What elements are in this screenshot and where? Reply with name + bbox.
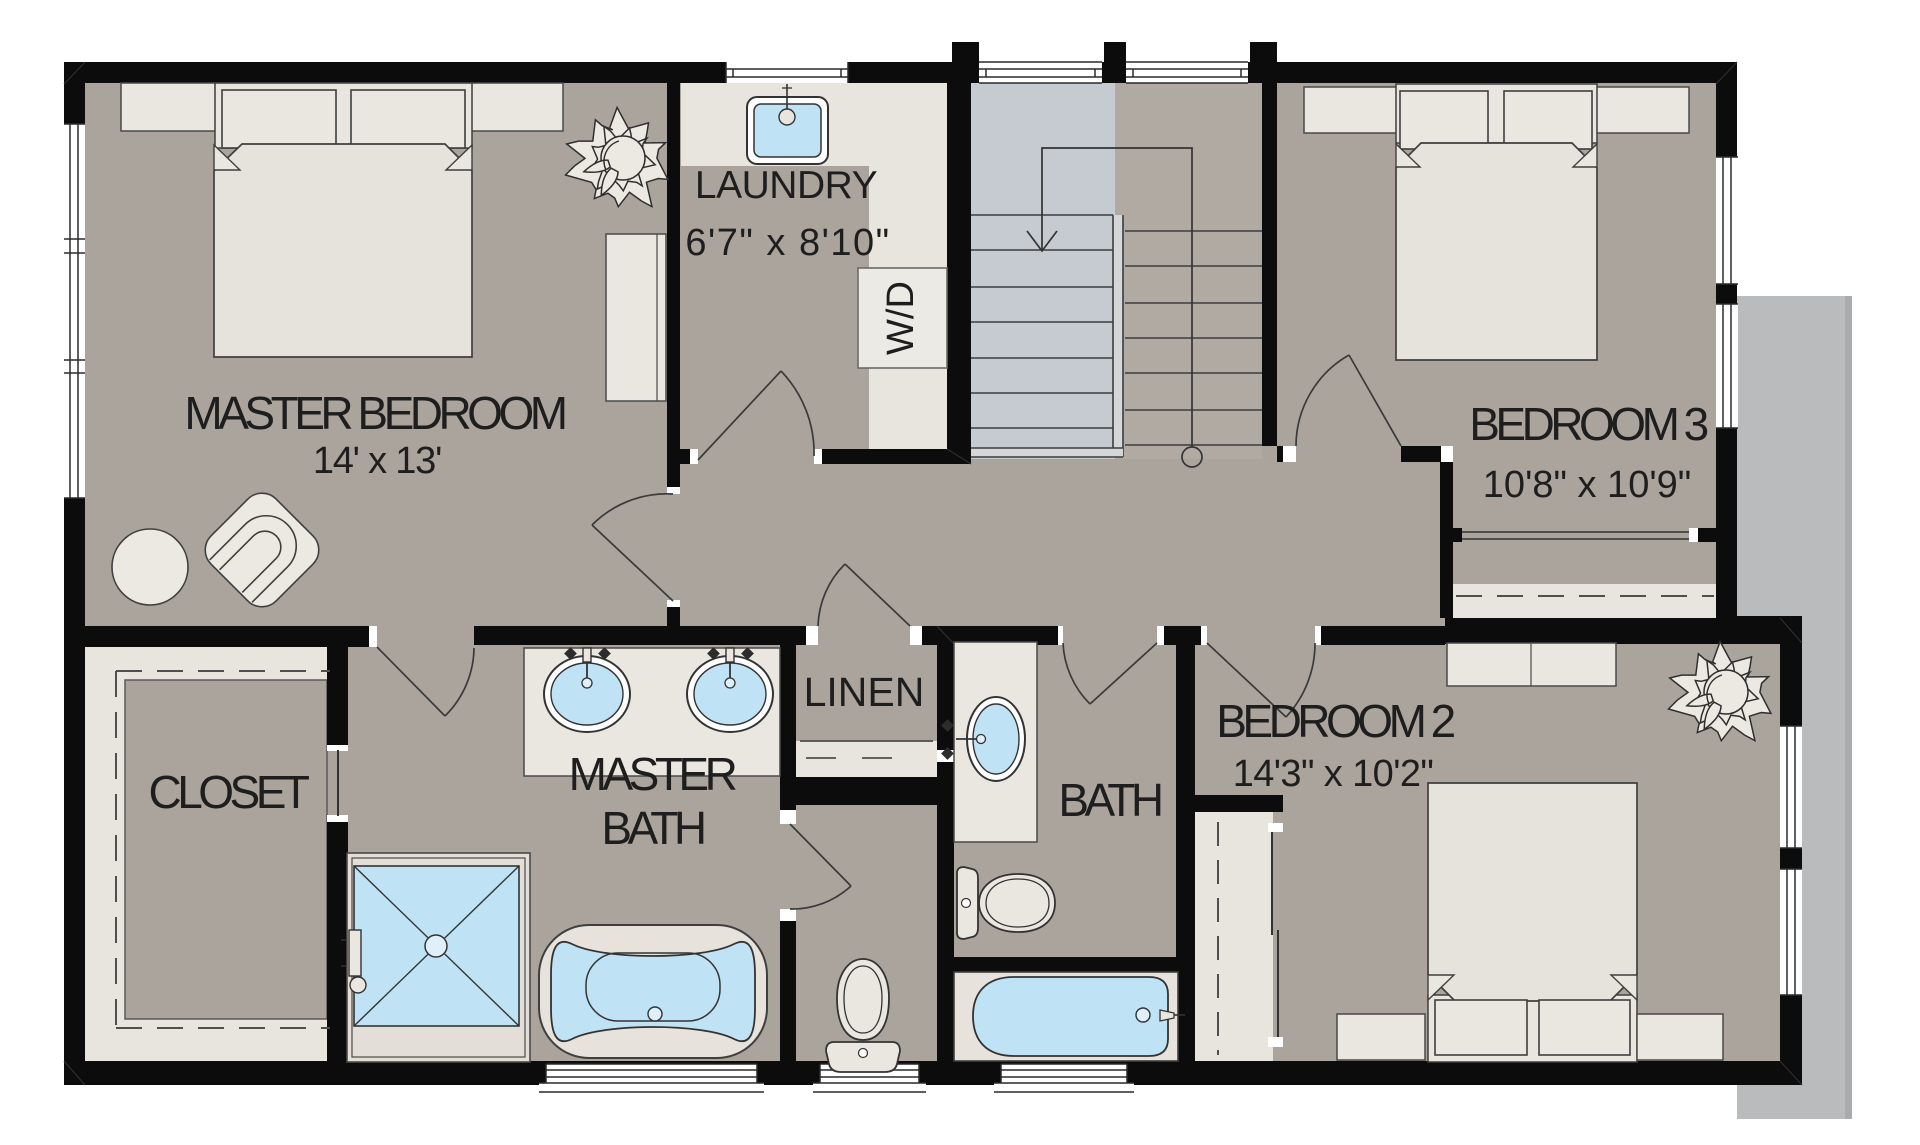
svg-text:BEDROOM 2: BEDROOM 2 [1216, 695, 1454, 747]
svg-text:BATH: BATH [1058, 774, 1161, 826]
svg-text:14' x 13': 14' x 13' [313, 440, 441, 482]
svg-text:LAUNDRY: LAUNDRY [695, 164, 878, 207]
svg-text:10'8" x 10'9": 10'8" x 10'9" [1483, 464, 1691, 506]
svg-text:W/D: W/D [880, 281, 922, 355]
svg-text:CLOSET: CLOSET [148, 766, 309, 818]
svg-text:MASTER: MASTER [569, 748, 737, 800]
svg-text:6'7" x 8'10": 6'7" x 8'10" [685, 222, 890, 264]
svg-text:LINEN: LINEN [804, 669, 925, 715]
svg-text:BEDROOM 3: BEDROOM 3 [1469, 398, 1707, 450]
svg-text:14'3" x 10'2": 14'3" x 10'2" [1233, 753, 1434, 795]
svg-text:MASTER BEDROOM: MASTER BEDROOM [184, 387, 564, 439]
svg-text:BATH: BATH [601, 802, 704, 854]
